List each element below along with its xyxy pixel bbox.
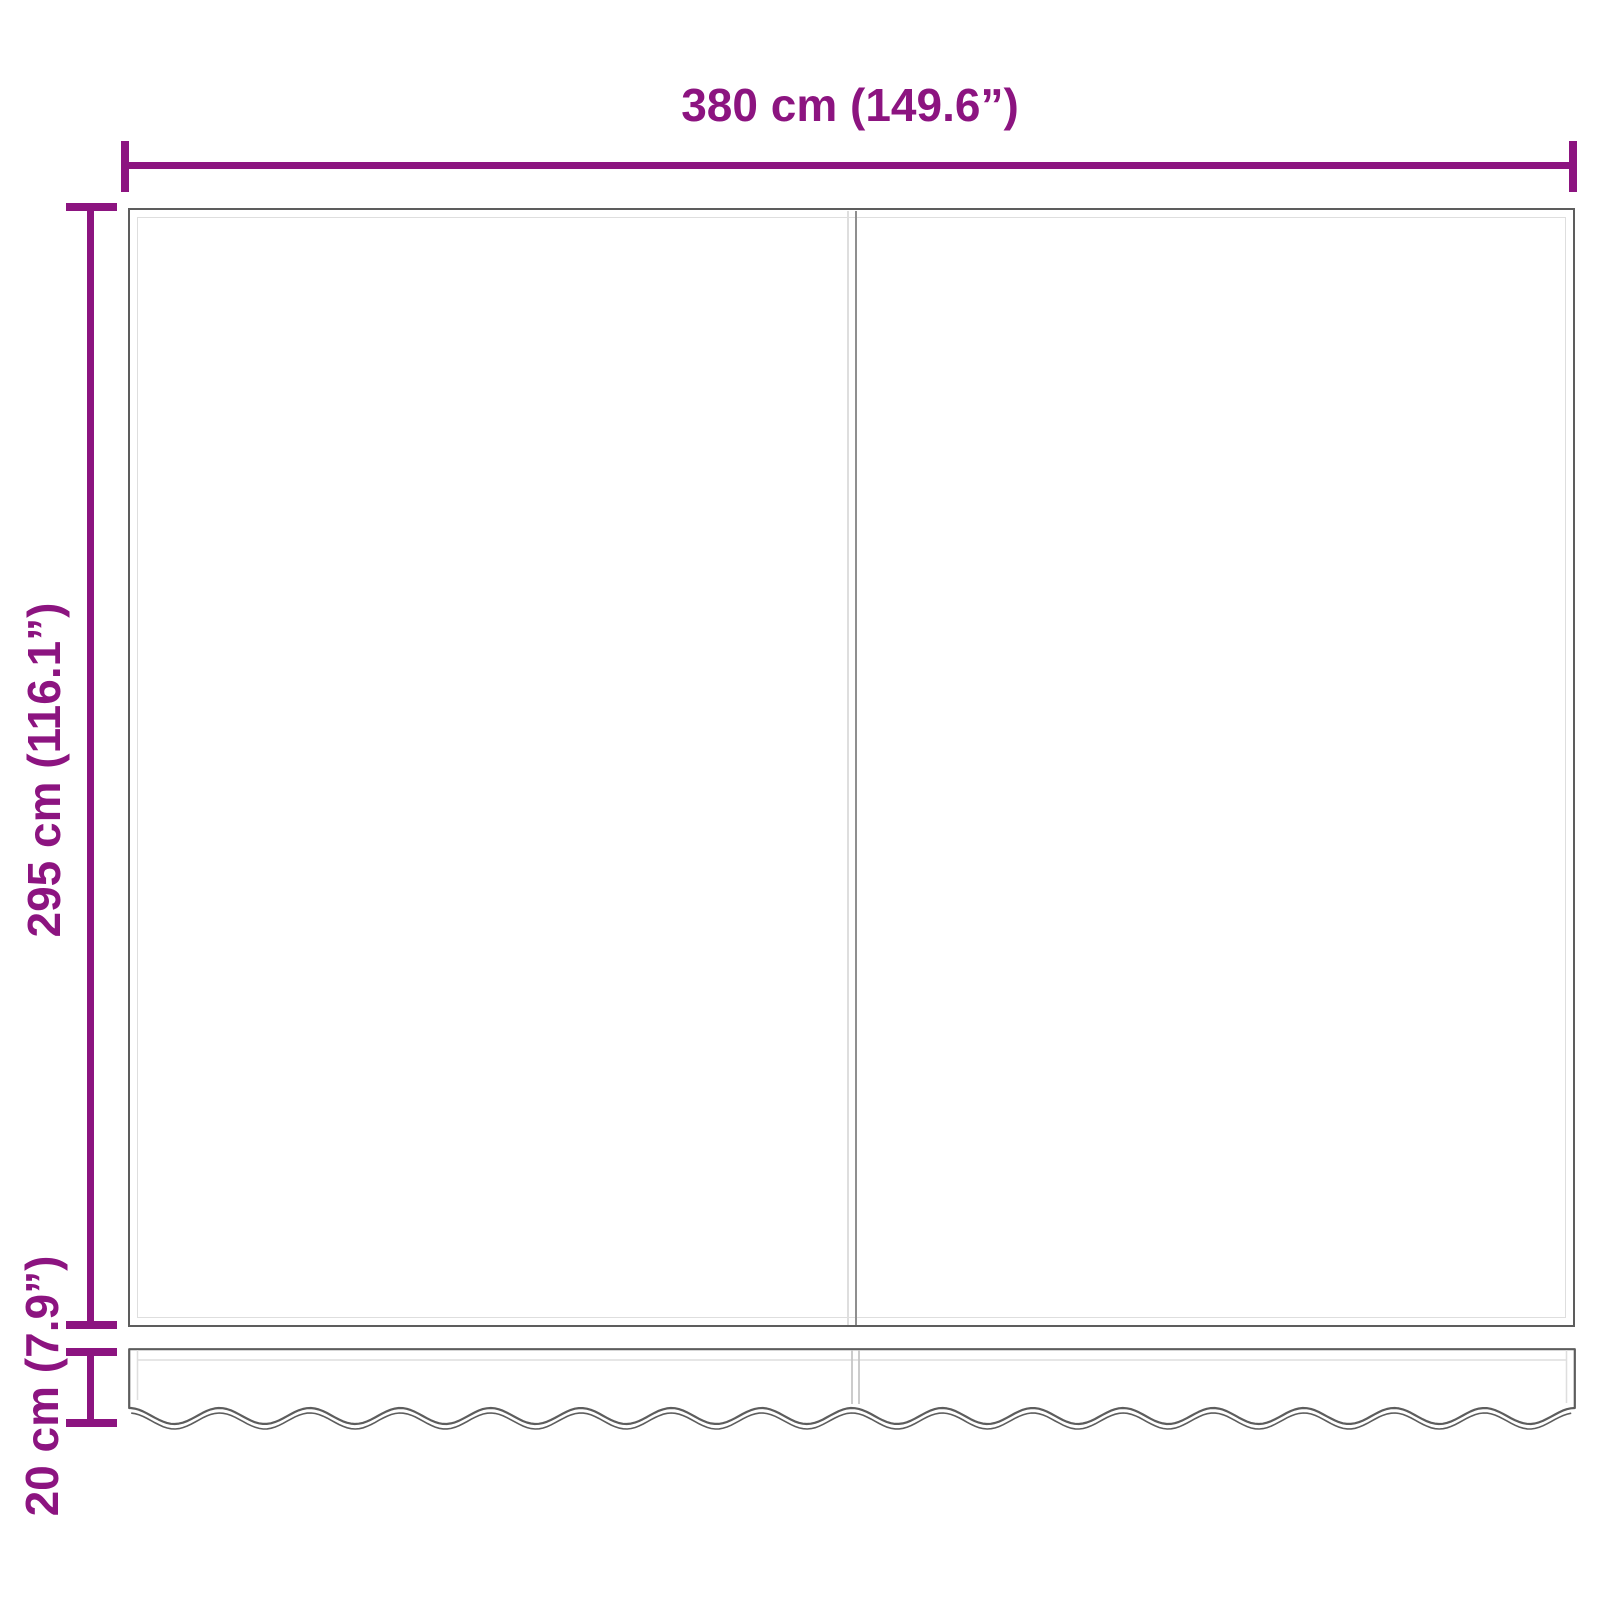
valance-strip xyxy=(0,0,1600,1600)
diagram-canvas: 380 cm (149.6”) 295 cm (116.1”) 20 cm (7… xyxy=(0,0,1600,1600)
